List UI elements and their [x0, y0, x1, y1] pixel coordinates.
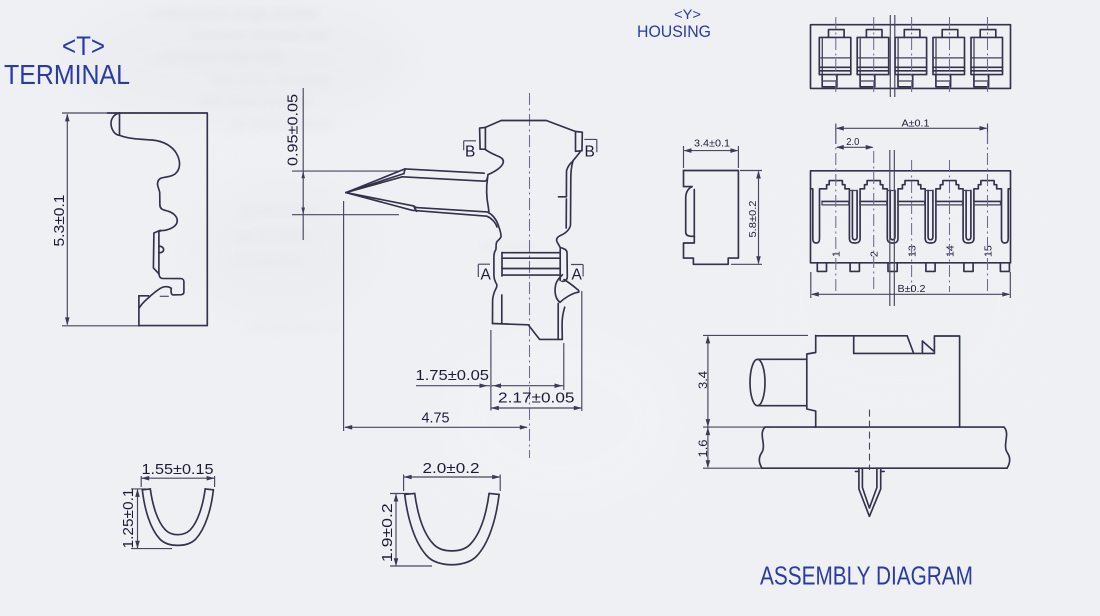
- svg-text:1.6: 1.6: [698, 440, 710, 458]
- svg-text:14: 14: [944, 245, 956, 257]
- svg-text:A±0.1: A±0.1: [902, 119, 930, 130]
- svg-text:B±0.2: B±0.2: [898, 284, 926, 295]
- svg-text:15: 15: [982, 245, 994, 257]
- svg-text:0.95±0.05: 0.95±0.05: [286, 94, 302, 166]
- svg-text:HOUSING: HOUSING: [637, 22, 711, 41]
- svg-text:5.3±0.1: 5.3±0.1: [52, 195, 68, 247]
- svg-text:2.0±0.2: 2.0±0.2: [423, 461, 480, 477]
- svg-text:B: B: [585, 144, 595, 161]
- svg-text:aps nl maers: aps nl maers: [235, 228, 310, 243]
- svg-text:etnlo cmil: etnlo cmil: [480, 238, 535, 253]
- svg-text:lsnoitcm etnp: lsnoitcm etnp: [240, 203, 317, 218]
- svg-text:1.55±0.15: 1.55±0.15: [142, 462, 214, 478]
- svg-text:TERMINAL: TERMINAL: [4, 59, 130, 90]
- svg-text:1.75±0.05: 1.75±0.05: [416, 368, 490, 384]
- svg-text:2: 2: [869, 251, 881, 257]
- svg-text:13: 13: [906, 245, 918, 257]
- svg-text:1.9±0.2: 1.9±0.2: [380, 503, 396, 562]
- svg-text:cnu eta bnm: cnu eta bnm: [230, 253, 302, 268]
- svg-text:A: A: [481, 266, 492, 283]
- svg-text:uorlinammo lsnge anleed: uorlinammo lsnge anleed: [150, 5, 318, 22]
- svg-text:3.4±0.1: 3.4±0.1: [694, 138, 730, 150]
- svg-text:ASSEMBLY DIAGRAM: ASSEMBLY DIAGRAM: [760, 561, 973, 591]
- svg-text:4.75: 4.75: [422, 411, 450, 427]
- svg-text:2.17±0.05: 2.17±0.05: [498, 391, 575, 407]
- svg-text:<Y>: <Y>: [674, 6, 701, 22]
- svg-text:ps nlim aers noi: ps nlim aers noi: [250, 318, 341, 333]
- svg-text:<T>: <T>: [62, 31, 105, 61]
- svg-text:1: 1: [831, 251, 843, 257]
- svg-text:ap tnuocustomer: ap tnuocustomer: [230, 115, 335, 131]
- svg-text:lsno itcnu eta bnam: lsno itcnu eta bnam: [210, 71, 331, 87]
- svg-text:cs tnemnl etnp noits: cs tnemnl etnp noits: [160, 49, 285, 65]
- svg-text:A: A: [572, 266, 583, 283]
- svg-text:senoil ps nlimaers noit: senoil ps nlimaers noit: [190, 27, 329, 43]
- svg-text:1.25±0.1: 1.25±0.1: [121, 489, 137, 549]
- svg-text:5.8±0.2: 5.8±0.2: [747, 200, 759, 237]
- svg-text:2.0: 2.0: [846, 137, 859, 148]
- svg-text:B: B: [465, 144, 475, 161]
- svg-text:3.4: 3.4: [698, 370, 710, 389]
